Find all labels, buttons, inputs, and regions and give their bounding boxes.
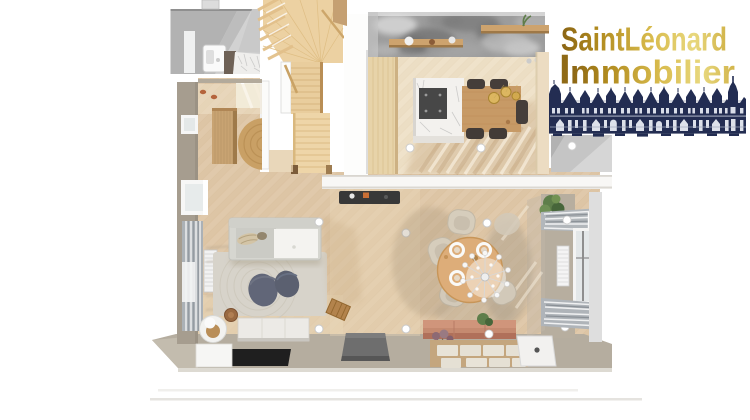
svg-text:mmobilier: mmobilier <box>570 53 735 90</box>
svg-text:SaintLéonard: SaintLéonard <box>561 21 727 58</box>
svg-text:I: I <box>559 45 571 92</box>
